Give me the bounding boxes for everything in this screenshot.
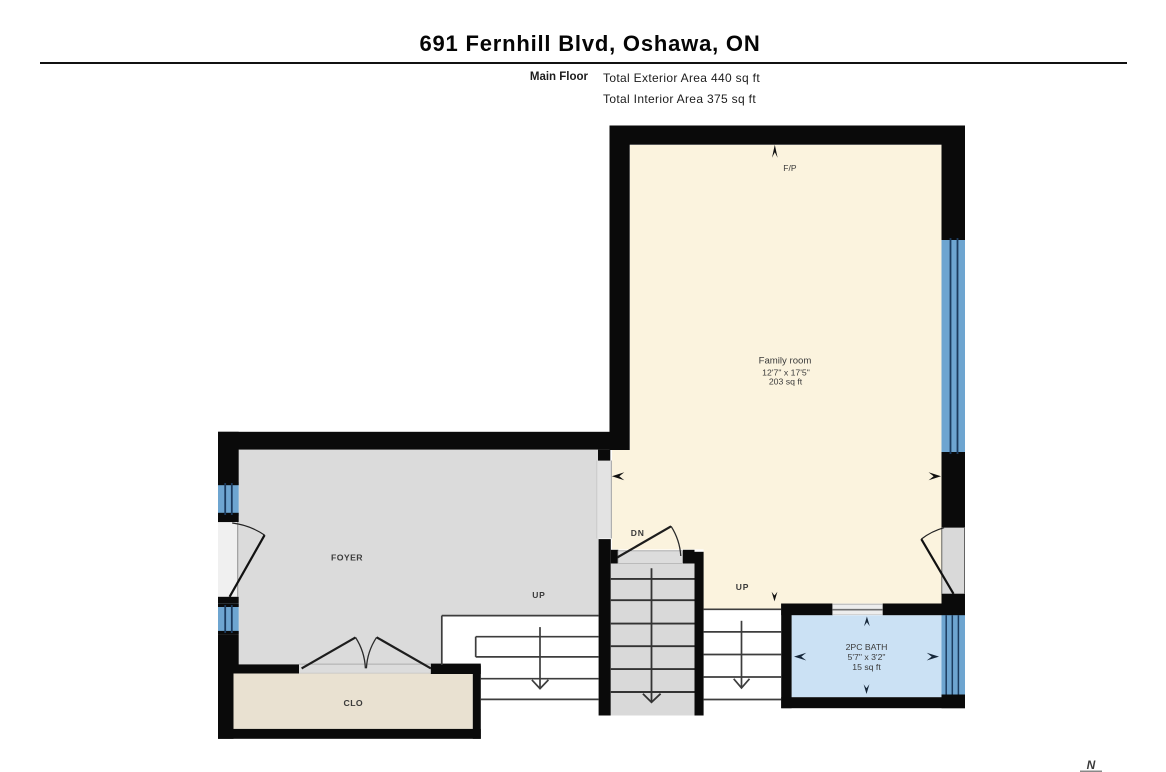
svg-text:CLO: CLO: [344, 698, 364, 708]
svg-text:FOYER: FOYER: [331, 553, 363, 563]
svg-text:5'7" x 3'2": 5'7" x 3'2": [848, 652, 886, 662]
svg-text:UP: UP: [532, 590, 545, 600]
svg-text:F/P: F/P: [783, 163, 797, 173]
svg-text:2PC BATH: 2PC BATH: [846, 642, 888, 652]
svg-text:15 sq ft: 15 sq ft: [852, 662, 881, 672]
svg-text:DN: DN: [631, 528, 645, 538]
svg-text:Family room: Family room: [759, 355, 812, 366]
svg-text:UP: UP: [736, 582, 749, 592]
svg-text:N: N: [1087, 758, 1096, 772]
svg-text:203 sq ft: 203 sq ft: [769, 377, 803, 387]
